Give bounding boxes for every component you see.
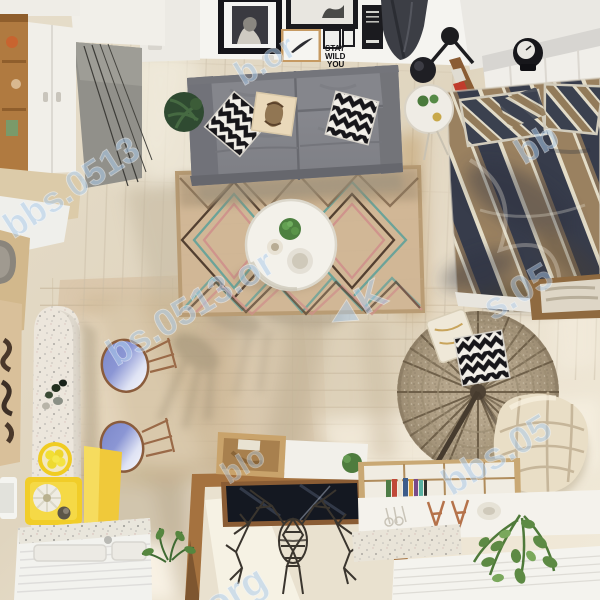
svg-text:YOU: YOU <box>327 60 345 69</box>
